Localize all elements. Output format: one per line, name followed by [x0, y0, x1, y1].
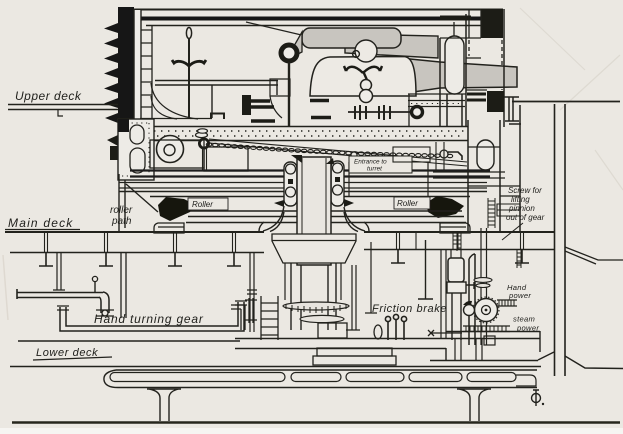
svg-text:Lower deck: Lower deck [36, 347, 98, 359]
svg-text:roller: roller [110, 205, 133, 216]
svg-text:Screw for: Screw for [508, 186, 542, 195]
svg-text:Roller: Roller [192, 200, 213, 209]
svg-text:out of gear: out of gear [506, 213, 545, 222]
svg-text:Main deck: Main deck [8, 216, 74, 230]
svg-text:lifting: lifting [511, 195, 530, 204]
svg-text:Entrance to: Entrance to [354, 159, 387, 166]
svg-text:turret: turret [367, 166, 382, 173]
svg-text:Hand turning gear: Hand turning gear [94, 312, 204, 326]
svg-text:Roller: Roller [397, 199, 418, 208]
svg-text:pinnion: pinnion [508, 204, 535, 213]
svg-text:Friction brake: Friction brake [372, 303, 447, 315]
svg-text:power: power [508, 291, 531, 300]
svg-text:steam: steam [513, 315, 535, 324]
svg-text:path: path [111, 216, 132, 227]
svg-text:Upper deck: Upper deck [15, 89, 82, 103]
